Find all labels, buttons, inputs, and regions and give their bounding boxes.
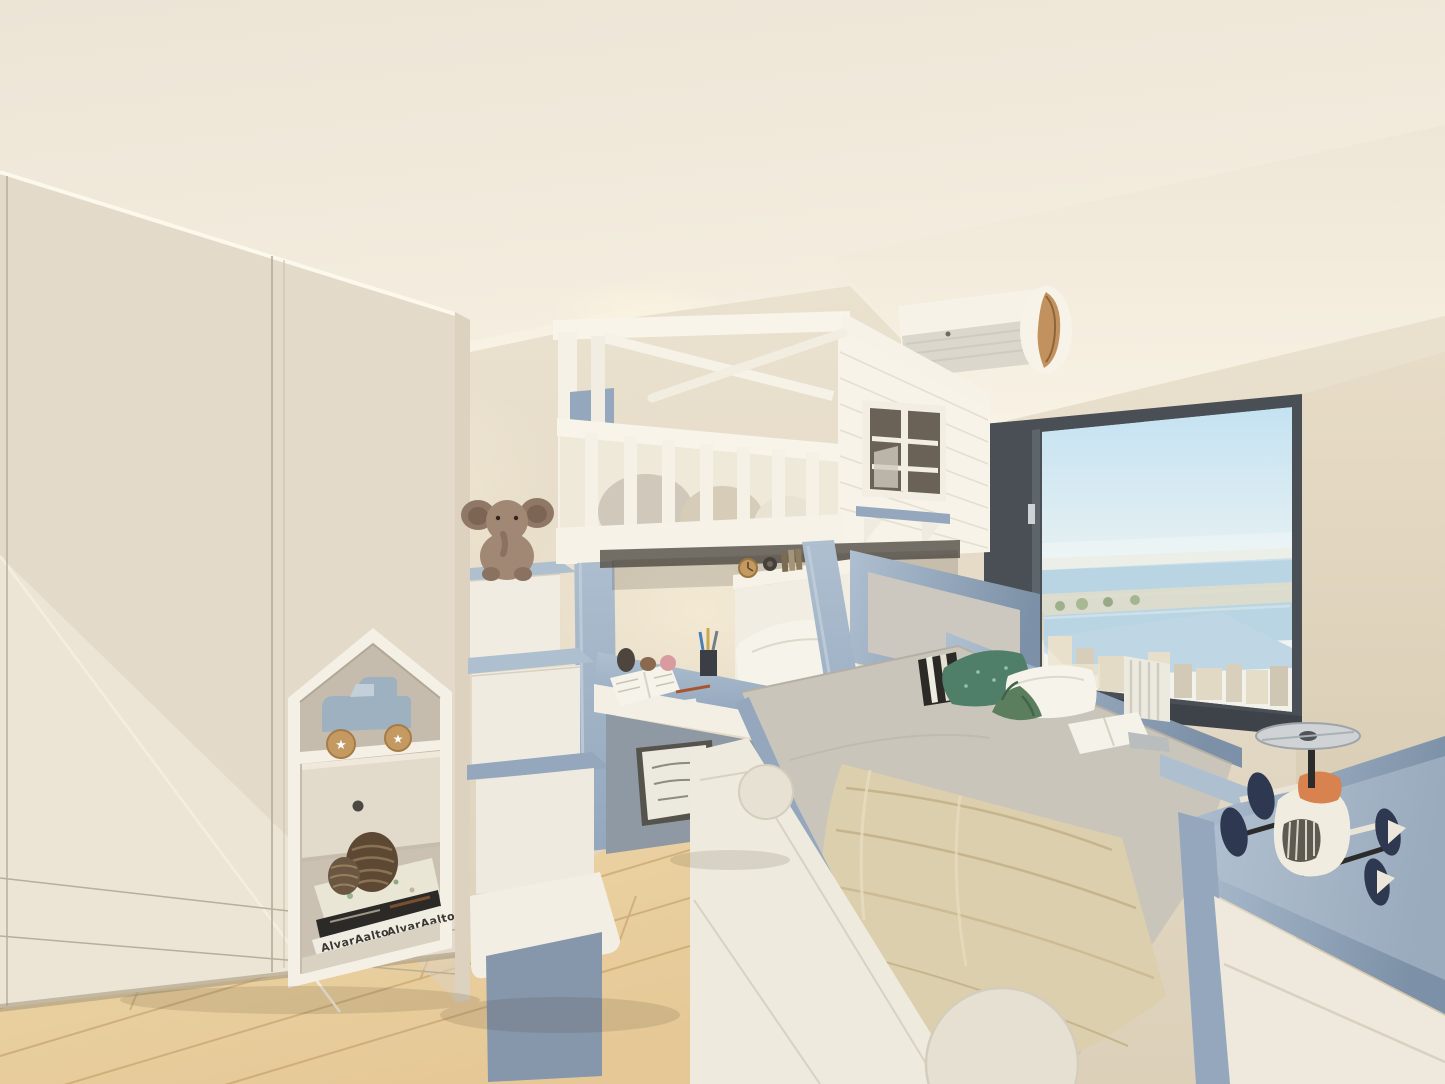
- radiator: [1124, 656, 1170, 722]
- elephant-figurine: [617, 648, 635, 672]
- side-cabinet: [1160, 723, 1445, 1084]
- window-handle: [1028, 504, 1035, 524]
- pig-toy: [660, 655, 676, 671]
- house-nook: ★ ★: [288, 628, 456, 988]
- toy-figurine: [640, 657, 656, 671]
- wardrobe-side: [455, 312, 470, 1003]
- kids-bedroom-render: ★ ★: [0, 0, 1445, 1084]
- plane-seat: [1298, 771, 1342, 803]
- wheel-star: ★: [393, 732, 404, 746]
- loft-wall-window: [862, 400, 946, 502]
- drawer-wheel-disc: [739, 765, 793, 819]
- wheel-star: ★: [335, 738, 347, 753]
- pen-cup: [700, 650, 717, 676]
